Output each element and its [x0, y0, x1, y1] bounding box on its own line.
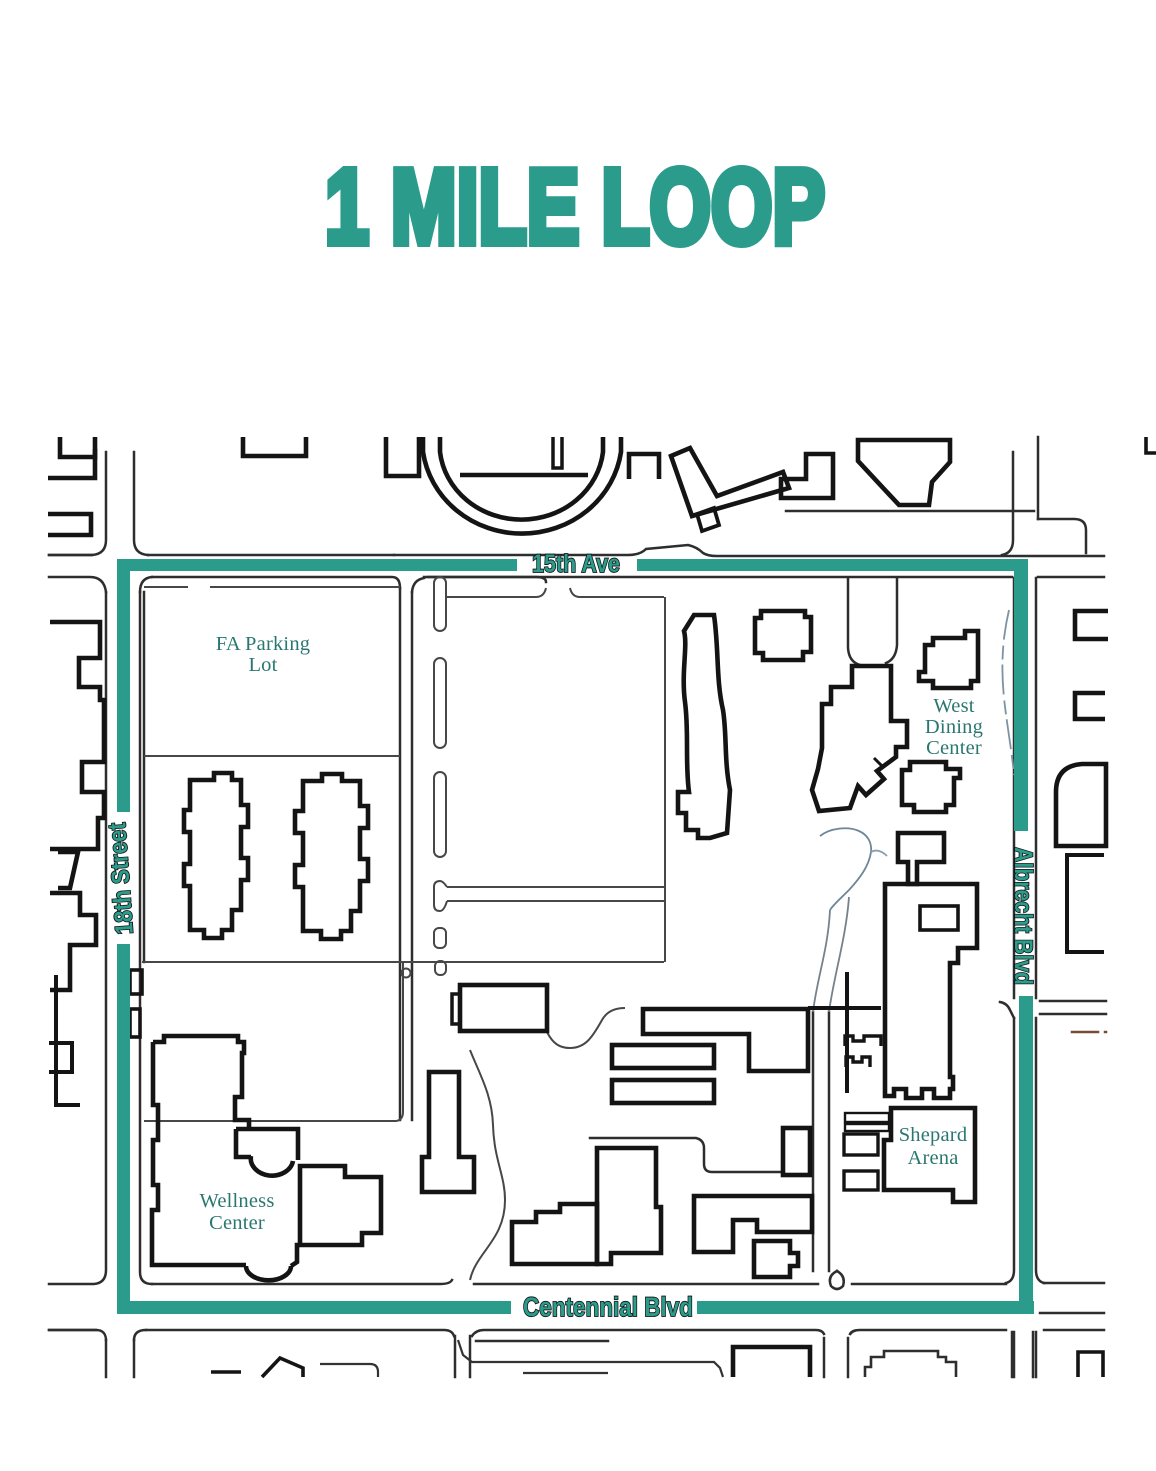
svg-text:Dining: Dining: [925, 716, 983, 738]
svg-text:West: West: [933, 695, 974, 717]
svg-text:Shepard: Shepard: [899, 1124, 968, 1146]
svg-text:Albrecht Blvd: Albrecht Blvd: [1009, 847, 1037, 985]
svg-text:Center: Center: [926, 737, 982, 759]
svg-text:Wellness: Wellness: [199, 1190, 274, 1212]
svg-text:Centennial Blvd: Centennial Blvd: [523, 1292, 693, 1322]
svg-text:15th Ave: 15th Ave: [532, 550, 620, 578]
svg-text:Lot: Lot: [248, 654, 277, 676]
svg-text:Center: Center: [209, 1212, 265, 1234]
svg-text:FA Parking: FA Parking: [216, 633, 310, 655]
svg-text:1 MILE LOOP: 1 MILE LOOP: [325, 148, 825, 266]
svg-text:Arena: Arena: [907, 1147, 958, 1169]
